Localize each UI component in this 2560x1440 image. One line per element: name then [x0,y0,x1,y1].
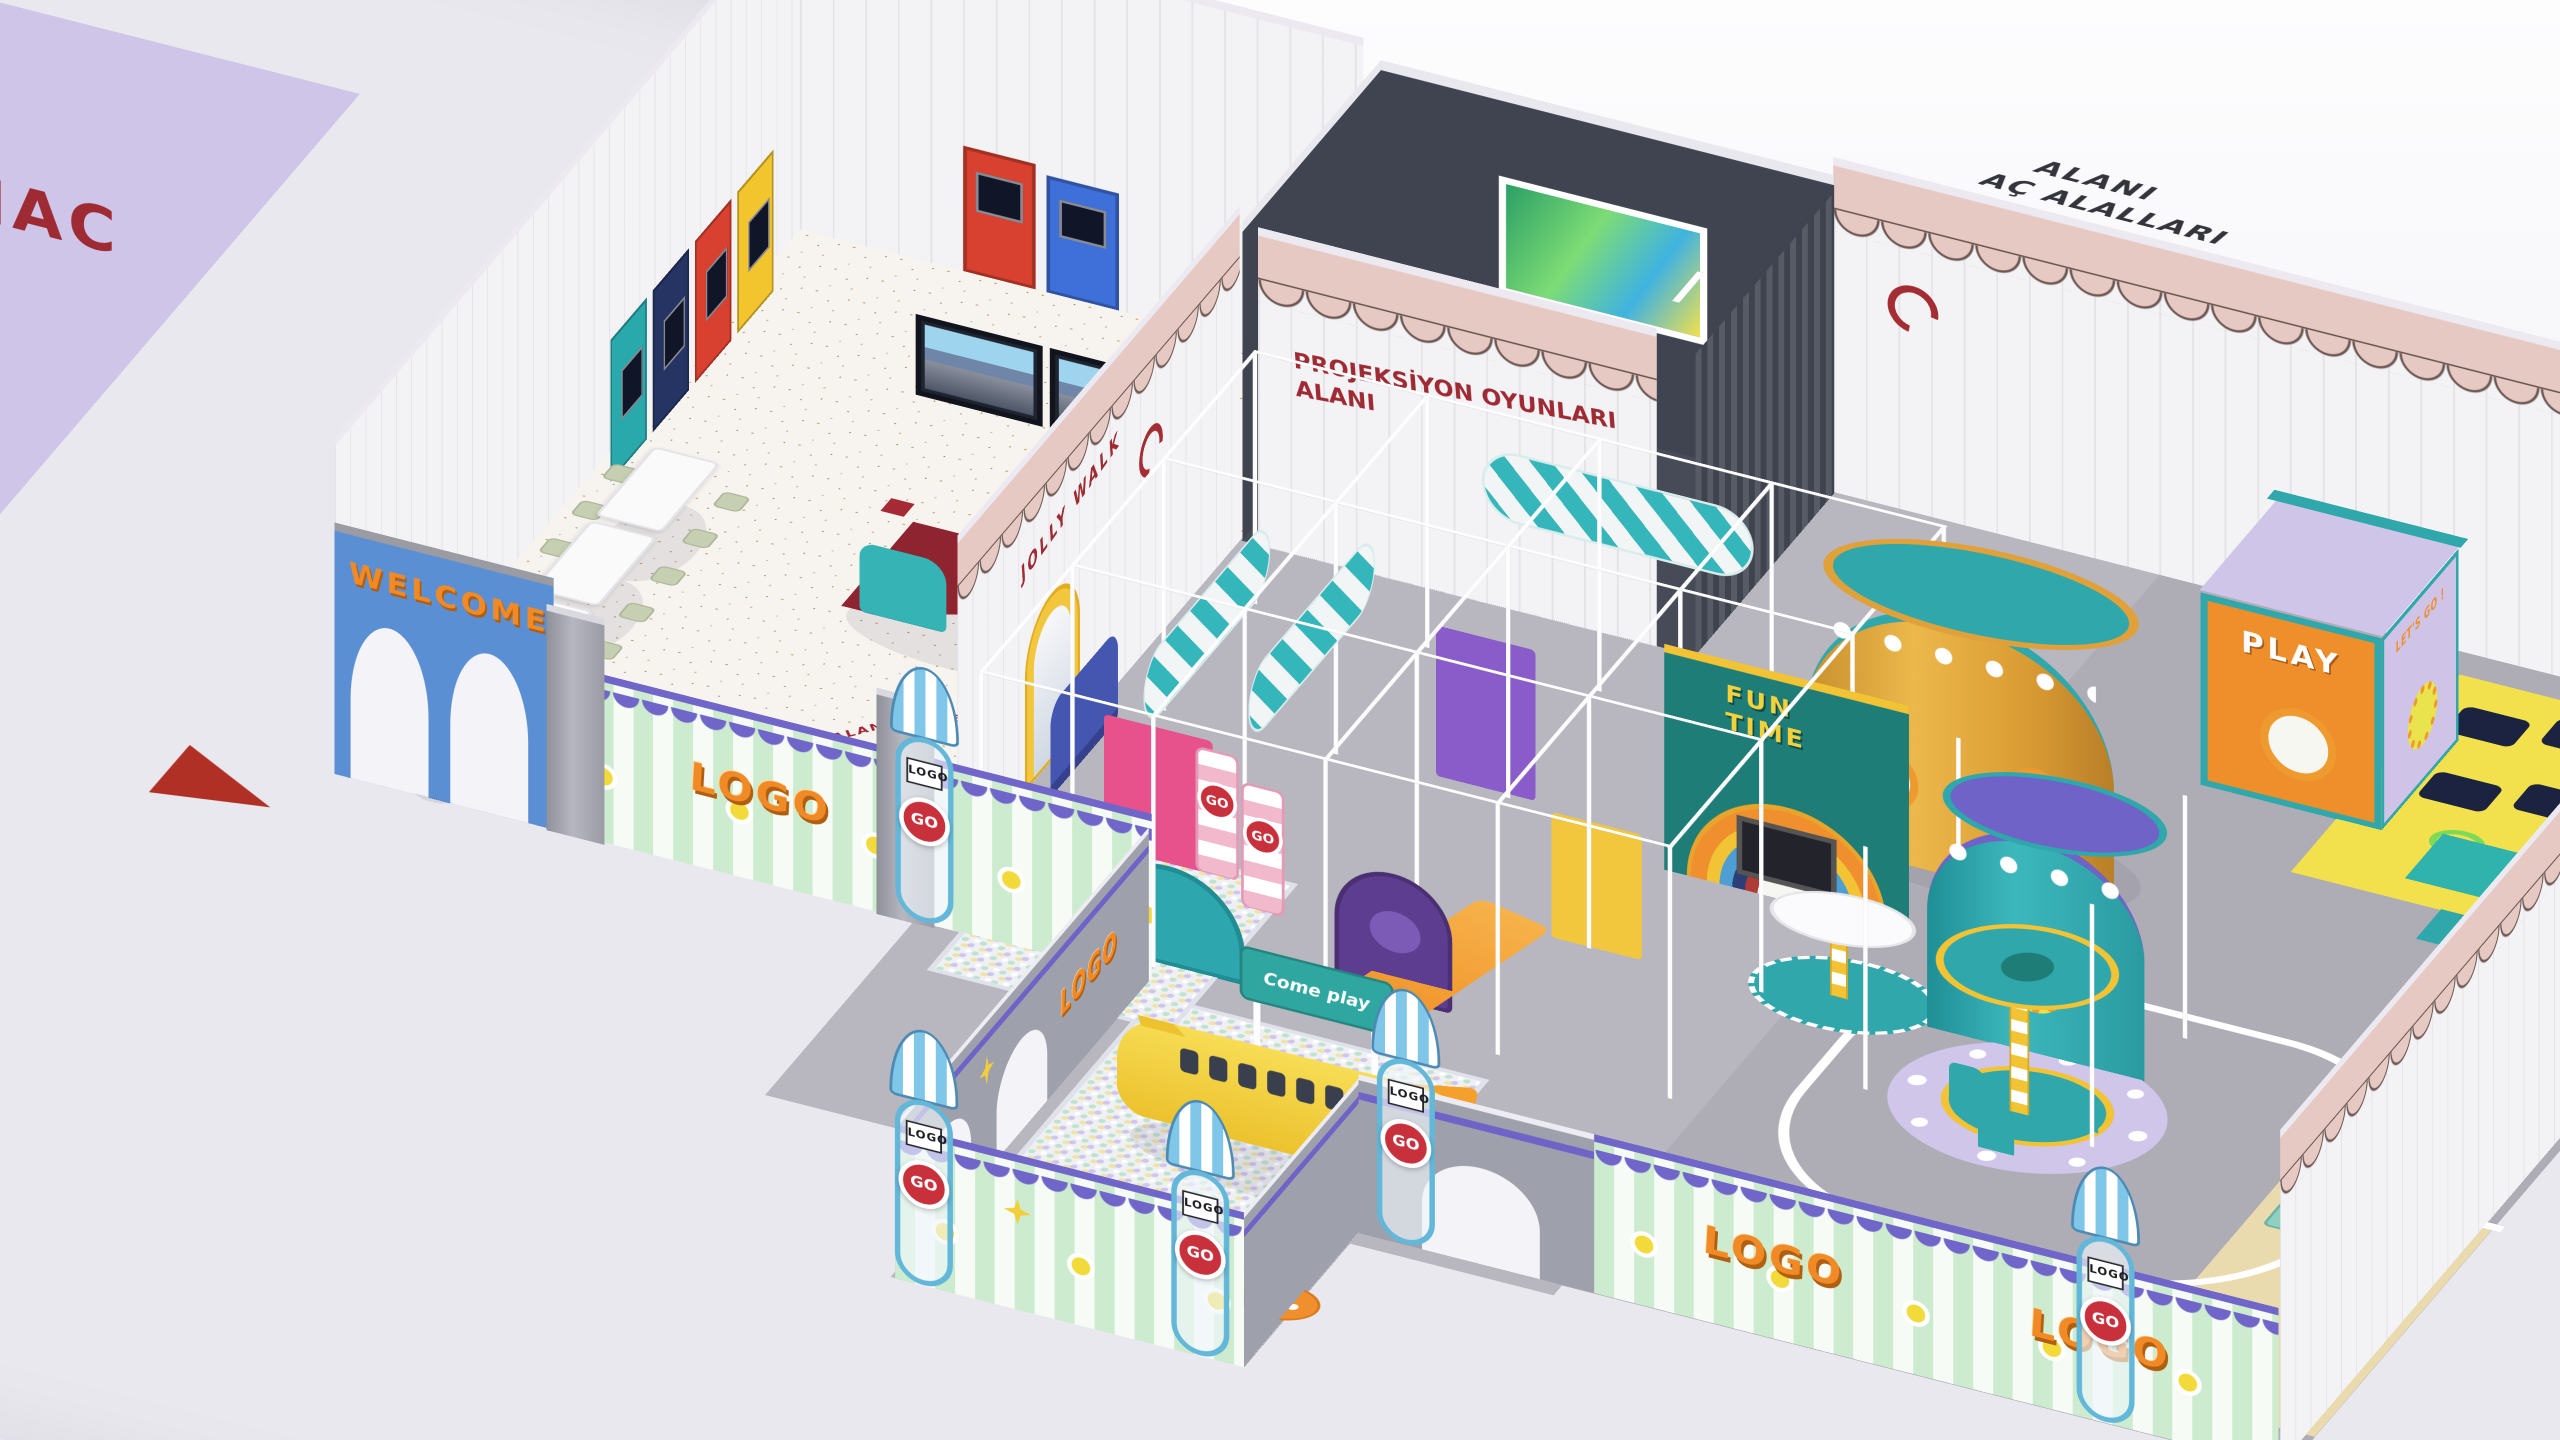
totem-go-badge-c: GO [1175,1225,1226,1285]
welcome-arch-2 [450,644,528,823]
playground-render: MACPROJEKSİYON OYUNLARI ALANIJOLLY WALKW… [0,0,2560,1440]
frame-post-4-2 [1759,740,1764,993]
arcade-screen-5 [976,171,1023,223]
frame-post-2-2 [1415,652,1420,905]
umbrella-totem-c: LOGOGO [1162,1091,1238,1370]
plane-win-1 [1209,1055,1227,1083]
umbrella-totem-b: LOGOGO [886,1021,962,1300]
totem-ring-e: LOGOGO [2077,1230,2135,1429]
bay-logo: LOGO [1059,919,1118,1026]
go-totem-badge-2: GO [1243,813,1283,860]
frame-post-2-1 [1506,546,1511,799]
towerB-post-1 [2090,903,2095,1147]
arcade-screen-6 [1059,199,1106,249]
towerB-post-0 [1863,846,1868,1090]
totem-go-badge-e: GO [2080,1291,2131,1351]
arcade-cabinet-5 [963,146,1036,290]
play-house-porthole [2260,700,2336,790]
totem-logo-plate-b: LOGO [906,1120,942,1154]
go-totem-1: GO [1195,745,1239,882]
totem-go-badge-b: GO [898,1155,949,1215]
frame-post-1-0 [1425,396,1430,649]
welcome-arch-1 [351,619,429,798]
totem-ring-a: LOGOGO [895,731,953,930]
totem-logo-plate-e: LOGO [2087,1256,2123,1290]
plane-win-4 [1296,1077,1314,1105]
frame-post-3-2 [1587,696,1592,949]
umbrella-totem-d: LOGOGO [1368,980,1444,1259]
totem-logo-plate-c: LOGO [1182,1190,1218,1224]
plane-win-0 [1180,1047,1198,1075]
arcade-cabinet-6 [1047,175,1120,311]
go-totem-badge-1: GO [1197,777,1237,824]
totem-go-badge-a: GO [899,792,950,852]
frame-post-0-2 [1070,565,1075,818]
funtime-text: FUN TIME [1725,679,1847,765]
frame-post-3-3 [1495,803,1500,1056]
totem-logo-plate-a: LOGO [906,757,942,791]
paw-pad [1370,906,1421,959]
totem-ring-b: LOGOGO [895,1093,953,1292]
play-house-text: PLAY [2241,624,2341,683]
plane-win-2 [1238,1062,1256,1090]
totem-ring-c: LOGOGO [1171,1164,1229,1363]
umbrella-totem-a: LOGOGO [886,658,962,937]
bay-star-1 [980,1048,994,1093]
front-col-1 [546,604,604,845]
play-house-flower-port [2408,669,2438,762]
totem-go-badge-d: GO [1381,1114,1432,1174]
plane-win-3 [1267,1070,1285,1098]
frame-post-2-0 [1597,439,1602,692]
frame-post-4-3 [1668,847,1673,1100]
go-totem-2: GO [1241,781,1285,918]
umbrella-totem-e: LOGOGO [2067,1157,2143,1436]
wall-swirl-decal-1 [1878,279,1949,341]
totem-ring-d: LOGOGO [1377,1052,1435,1251]
towerB-post-3 [2183,795,2188,1039]
totem-logo-plate-d: LOGO [1388,1079,1424,1113]
